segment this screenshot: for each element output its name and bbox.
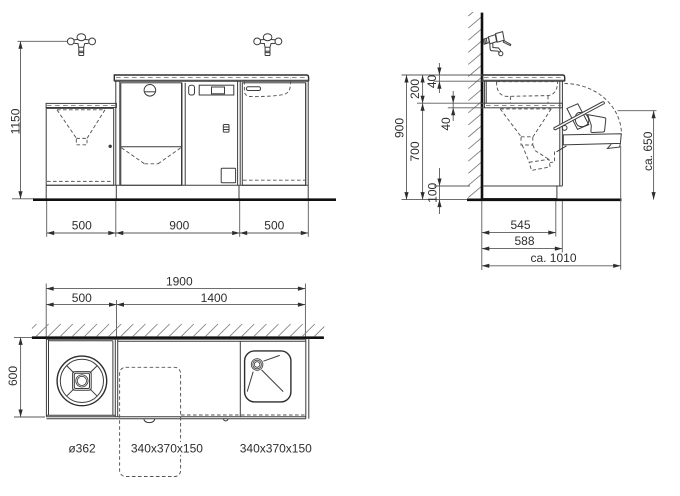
- svg-text:500: 500: [264, 219, 284, 233]
- svg-text:545: 545: [510, 218, 530, 232]
- svg-text:ø362: ø362: [68, 442, 96, 456]
- svg-text:340x370x150: 340x370x150: [131, 442, 203, 456]
- svg-text:340x370x150: 340x370x150: [240, 442, 312, 456]
- svg-text:900: 900: [393, 118, 407, 138]
- svg-text:1900: 1900: [166, 274, 193, 288]
- svg-text:ca. 650: ca. 650: [641, 131, 655, 171]
- svg-text:600: 600: [6, 366, 20, 386]
- svg-text:ca. 1010: ca. 1010: [530, 251, 576, 265]
- svg-text:1400: 1400: [201, 291, 228, 305]
- svg-text:200: 200: [408, 79, 422, 99]
- svg-text:500: 500: [72, 291, 92, 305]
- svg-text:900: 900: [169, 219, 189, 233]
- svg-text:40: 40: [425, 75, 439, 89]
- svg-text:40: 40: [439, 117, 453, 131]
- svg-text:500: 500: [72, 219, 92, 233]
- svg-text:588: 588: [514, 234, 534, 248]
- svg-text:1150: 1150: [9, 108, 23, 134]
- svg-text:700: 700: [408, 141, 422, 161]
- svg-text:100: 100: [425, 182, 439, 202]
